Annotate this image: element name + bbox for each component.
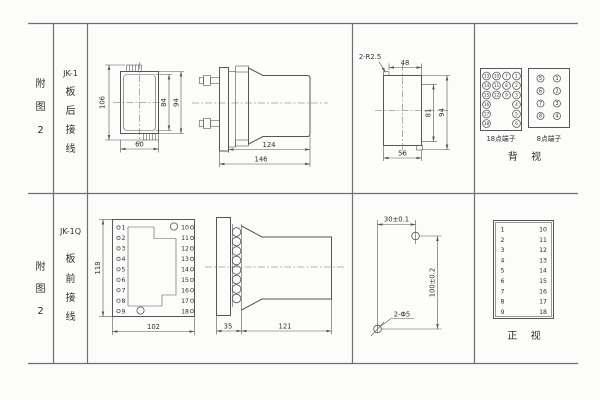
terminal-number: 9 [505, 93, 508, 98]
terminal-number: 8 [505, 83, 508, 88]
dim-146: 146 [255, 156, 268, 164]
terminal-number: 1 [555, 76, 558, 82]
dim-84: 84 [160, 98, 168, 107]
dim-124: 124 [263, 141, 276, 149]
table-number: 8 [501, 299, 505, 306]
block18-label: 18点端子 [486, 134, 515, 143]
terminal-number: 15 [181, 277, 189, 284]
terminal-number: 18 [484, 121, 490, 126]
row2-side-view: 35 121 [205, 218, 345, 335]
terminal-number: 4 [555, 114, 558, 120]
wiring-char: 线 [66, 310, 76, 323]
terminal-number: 3 [122, 246, 126, 253]
back-view-label: 背 视 [508, 150, 546, 163]
dim-30: 30±0.1 [384, 216, 409, 224]
terminal-block-18pt: 13 14 15 16 17 18 10 11 12 7 8 9 1 2 3 4… [481, 69, 522, 144]
wiring-char: 前 [66, 272, 76, 285]
mounting-screw [200, 76, 220, 86]
dim-102: 102 [147, 323, 160, 331]
front-view-label: 正 视 [507, 329, 545, 342]
terminal-number: 14 [181, 267, 189, 274]
terminal-block-8pt: 5 6 7 8 1 2 3 4 8点端子 [529, 69, 570, 144]
wiring-char: 线 [66, 142, 76, 155]
table-number: 9 [501, 309, 505, 316]
terminal-number: 7 [505, 74, 508, 79]
technical-drawing-sheet: 附 图 2 JK-1 板 后 接 线 106 84 94 [0, 0, 600, 400]
terminal-number: 4 [122, 256, 126, 263]
terminal-number: 6 [539, 89, 542, 95]
terminal-number: 7 [539, 101, 542, 107]
table-number: 7 [501, 288, 505, 295]
wiring-char: 接 [66, 123, 76, 136]
terminal-number: 17 [181, 298, 189, 305]
dim-106: 106 [99, 96, 107, 109]
row2-terminal-table: 110 211 312 413 514 615 716 817 918 正 视 [494, 221, 554, 343]
terminal-number: 2 [555, 89, 558, 95]
dim-94-cutout: 94 [438, 108, 446, 117]
fig-char: 图 [36, 101, 46, 113]
terminal-hatch-bottom [144, 134, 159, 141]
terminal-number: 18 [181, 308, 189, 315]
fig-char: 2 [37, 125, 43, 136]
mounting-hole [137, 307, 144, 314]
terminal-number: 1 [122, 225, 126, 232]
terminal-number: 6 [122, 277, 126, 284]
table-number: 15 [539, 278, 547, 285]
terminal-number: 8 [539, 114, 542, 120]
row2-model-label: JK-1Q 板 前 接 线 [59, 227, 81, 323]
table-number: 2 [501, 237, 505, 244]
terminal-number: 13 [484, 74, 490, 79]
terminal-number: 3 [515, 93, 518, 98]
dim-56: 56 [398, 150, 407, 158]
dim-81: 81 [425, 109, 433, 118]
table-number: 1 [501, 227, 505, 234]
wiring-char: 板 [66, 85, 76, 98]
terminal-number: 9 [122, 308, 126, 315]
row2-figure-label: 附 图 2 [36, 260, 46, 317]
table-number: 11 [539, 237, 547, 244]
terminal-number: 1 [515, 74, 518, 79]
terminal-number: 17 [484, 112, 490, 117]
terminal-number: 10 [181, 225, 189, 232]
row1-panel-cutout: 2-R2.5 48 81 94 56 [359, 53, 450, 161]
terminal-number: 14 [484, 83, 490, 88]
terminal-number: 4 [515, 102, 518, 107]
wiring-char: 后 [66, 105, 76, 117]
dim-94: 94 [173, 98, 181, 107]
terminal-number: 12 [494, 93, 500, 98]
drawing-canvas: 附 图 2 JK-1 板 后 接 线 106 84 94 [0, 0, 600, 400]
table-number: 3 [501, 247, 505, 254]
table-number: 17 [539, 299, 547, 306]
table-number: 14 [539, 268, 547, 275]
holes-label: 2-Φ5 [394, 311, 410, 319]
fig-char: 图 [36, 283, 46, 295]
terminal-number: 5 [122, 267, 126, 274]
terminal-number: 3 [555, 101, 558, 107]
terminal-number: 7 [122, 287, 126, 294]
terminal-number: 5 [539, 76, 542, 82]
terminal-number: 12 [181, 246, 189, 253]
terminal-number: 15 [484, 93, 490, 98]
terminal-number: 16 [181, 287, 189, 294]
row1-back-view-terminals: 13 14 15 16 17 18 10 11 12 7 8 9 1 2 3 4… [481, 69, 570, 164]
terminal-number: 2 [515, 83, 518, 88]
block8-label: 8点端子 [537, 134, 562, 143]
terminal-number: 13 [181, 256, 189, 263]
terminal-number: 16 [484, 102, 490, 107]
corner-radius-label: 2-R2.5 [359, 53, 381, 61]
table-number: 18 [539, 309, 547, 316]
table-number: 12 [539, 247, 547, 254]
table-number: 13 [539, 257, 547, 264]
wiring-char: 接 [66, 291, 76, 304]
table-number: 4 [501, 257, 505, 264]
model-name: JK-1 [62, 69, 78, 78]
table-number: 16 [539, 288, 547, 295]
terminal-number: 2 [122, 235, 126, 242]
dim-121: 121 [279, 323, 292, 331]
dim-60: 60 [135, 141, 144, 149]
row1-side-view: 124 146 [192, 66, 328, 167]
dim-48: 48 [401, 59, 410, 67]
mounting-hole [170, 223, 177, 230]
row2-front-view: 1 2 3 4 5 6 7 8 9 10 11 12 13 14 15 16 1… [94, 220, 195, 336]
dim-35: 35 [224, 323, 233, 331]
table-number: 5 [501, 268, 505, 275]
row1-model-label: JK-1 板 后 接 线 [62, 69, 78, 155]
dim-118: 118 [94, 262, 102, 275]
mounting-screw [200, 119, 220, 129]
model-name: JK-1Q [59, 227, 81, 236]
row1-figure-label: 附 图 2 [36, 77, 46, 136]
row1-front-view: 106 84 94 60 [99, 62, 185, 153]
table-number: 6 [501, 278, 505, 285]
terminal-number: 11 [494, 83, 500, 88]
fig-char: 附 [36, 77, 46, 90]
fig-char: 附 [36, 260, 46, 273]
table-number: 10 [539, 227, 547, 234]
terminal-number: 11 [181, 235, 189, 242]
terminal-number: 8 [122, 298, 126, 305]
wiring-char: 板 [66, 252, 76, 265]
row2-mounting-layout: 30±0.1 100±0.2 2-Φ5 [371, 216, 442, 337]
fig-char: 2 [37, 306, 43, 317]
terminal-number: 6 [515, 121, 518, 126]
dim-100: 100±0.2 [429, 268, 437, 297]
terminal-number: 5 [515, 112, 518, 117]
terminal-number: 10 [494, 74, 500, 79]
